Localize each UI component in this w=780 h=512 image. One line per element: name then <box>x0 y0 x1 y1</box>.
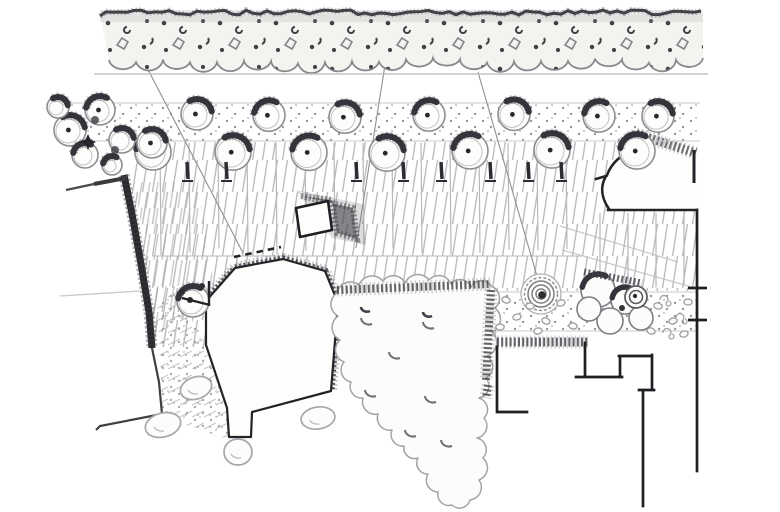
bollard-tick <box>561 162 562 179</box>
tree-trunk-dot <box>148 141 153 146</box>
bollard-tick <box>528 162 529 179</box>
pebble <box>526 303 534 309</box>
pebble <box>496 324 504 330</box>
tree-trunk-dot <box>96 108 101 113</box>
tree-trunk-dot <box>510 112 515 117</box>
tree-trunk-dot <box>383 151 388 156</box>
dark-mark <box>179 289 185 295</box>
large-tree-canopy <box>331 274 501 508</box>
tree-trunk-dot <box>229 150 234 155</box>
site-plan-sketch <box>0 0 780 512</box>
tree-trunk-dot <box>193 112 198 117</box>
tree-trunk-dot <box>548 148 553 153</box>
hedge-band <box>94 10 708 74</box>
tree-trunk-dot <box>425 113 430 118</box>
shrub-lobe <box>577 297 601 321</box>
stone <box>300 405 337 432</box>
tree-trunk-dot <box>654 114 659 119</box>
shrub-dark-blob <box>619 305 625 311</box>
shrub-lobe <box>629 306 653 330</box>
tree-trunk-dot <box>633 149 638 154</box>
cluster-shade-blob <box>111 146 119 154</box>
kiosk-footprint <box>296 201 332 237</box>
sketch-canvas <box>0 0 780 512</box>
guide-line <box>60 291 140 296</box>
bollard-tick <box>187 162 188 179</box>
stone <box>224 439 252 465</box>
tree-trunk-dot <box>265 113 270 118</box>
bollard-tick <box>490 162 491 179</box>
tree-trunk-dot <box>305 150 310 155</box>
bollard-tick <box>441 162 442 179</box>
tree-trunk-dot <box>341 115 346 120</box>
cluster-shade-blob <box>91 116 99 124</box>
tree-trunk-dot <box>466 149 471 154</box>
spiral-center <box>538 291 546 299</box>
bollard-tick <box>403 162 404 179</box>
tree-trunk-dot <box>66 128 71 133</box>
pebble <box>684 299 692 305</box>
canopy-outline <box>331 274 501 508</box>
tree-trunk-dot <box>595 114 600 119</box>
shrub-ring-dot <box>633 294 637 298</box>
dark-mark <box>199 283 205 289</box>
bollard-tick <box>226 162 227 179</box>
bollard-tick <box>356 162 357 179</box>
